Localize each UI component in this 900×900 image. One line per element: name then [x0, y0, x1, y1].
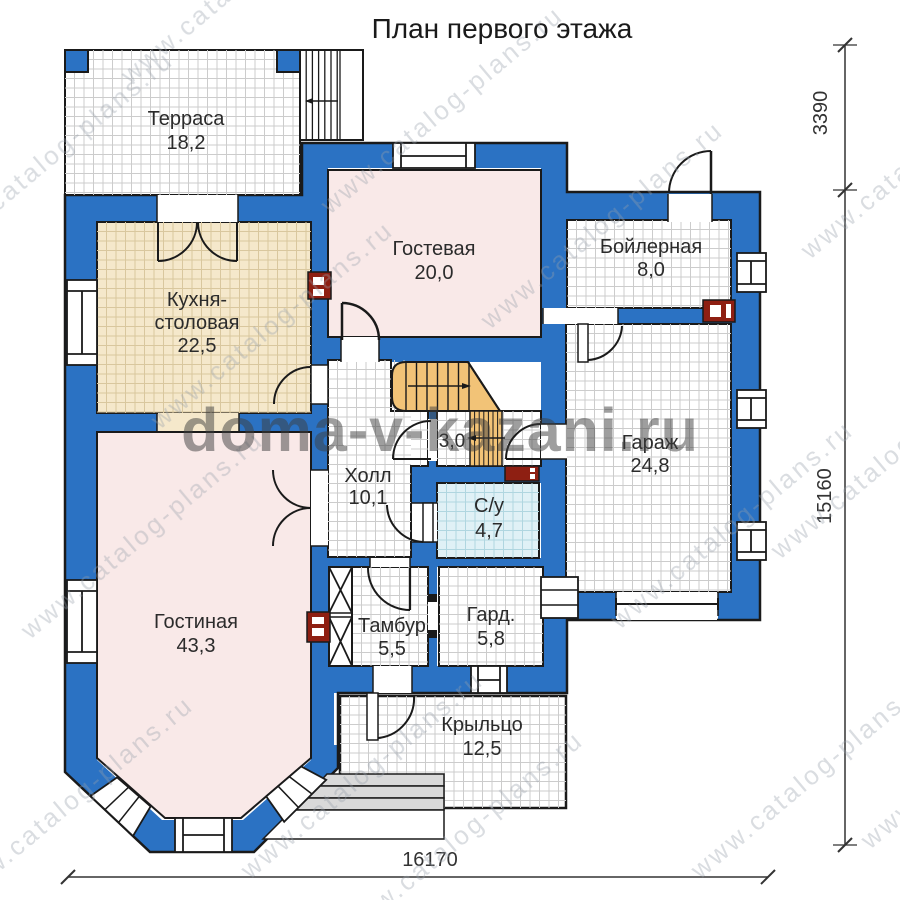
svg-text:Кухня-: Кухня- [167, 289, 227, 311]
svg-text:43,3: 43,3 [177, 635, 216, 657]
svg-text:Гостиная: Гостиная [154, 611, 238, 633]
svg-text:Тамбур: Тамбур [358, 615, 426, 637]
svg-text:10,1: 10,1 [349, 487, 388, 509]
svg-text:5,8: 5,8 [477, 628, 505, 650]
svg-text:12,5: 12,5 [463, 738, 502, 760]
svg-text:5,5: 5,5 [378, 638, 406, 660]
svg-text:Терраса: Терраса [148, 108, 226, 130]
svg-text:Гостевая: Гостевая [392, 238, 475, 260]
svg-text:18,2: 18,2 [167, 132, 206, 154]
svg-text:8,0: 8,0 [637, 259, 665, 281]
svg-text:столовая: столовая [155, 312, 240, 334]
svg-text:20,0: 20,0 [415, 262, 454, 284]
svg-text:Бойлерная: Бойлерная [600, 236, 702, 258]
svg-text:Крыльцо: Крыльцо [441, 714, 523, 736]
svg-text:3390: 3390 [810, 91, 832, 136]
svg-text:4,7: 4,7 [475, 520, 503, 542]
svg-text:22,5: 22,5 [178, 335, 217, 357]
svg-text:С/у: С/у [474, 495, 504, 517]
svg-text:doma-v-kazani.ru: doma-v-kazani.ru [181, 396, 699, 464]
svg-text:Холл: Холл [344, 465, 391, 487]
svg-text:Гард.: Гард. [467, 604, 516, 626]
